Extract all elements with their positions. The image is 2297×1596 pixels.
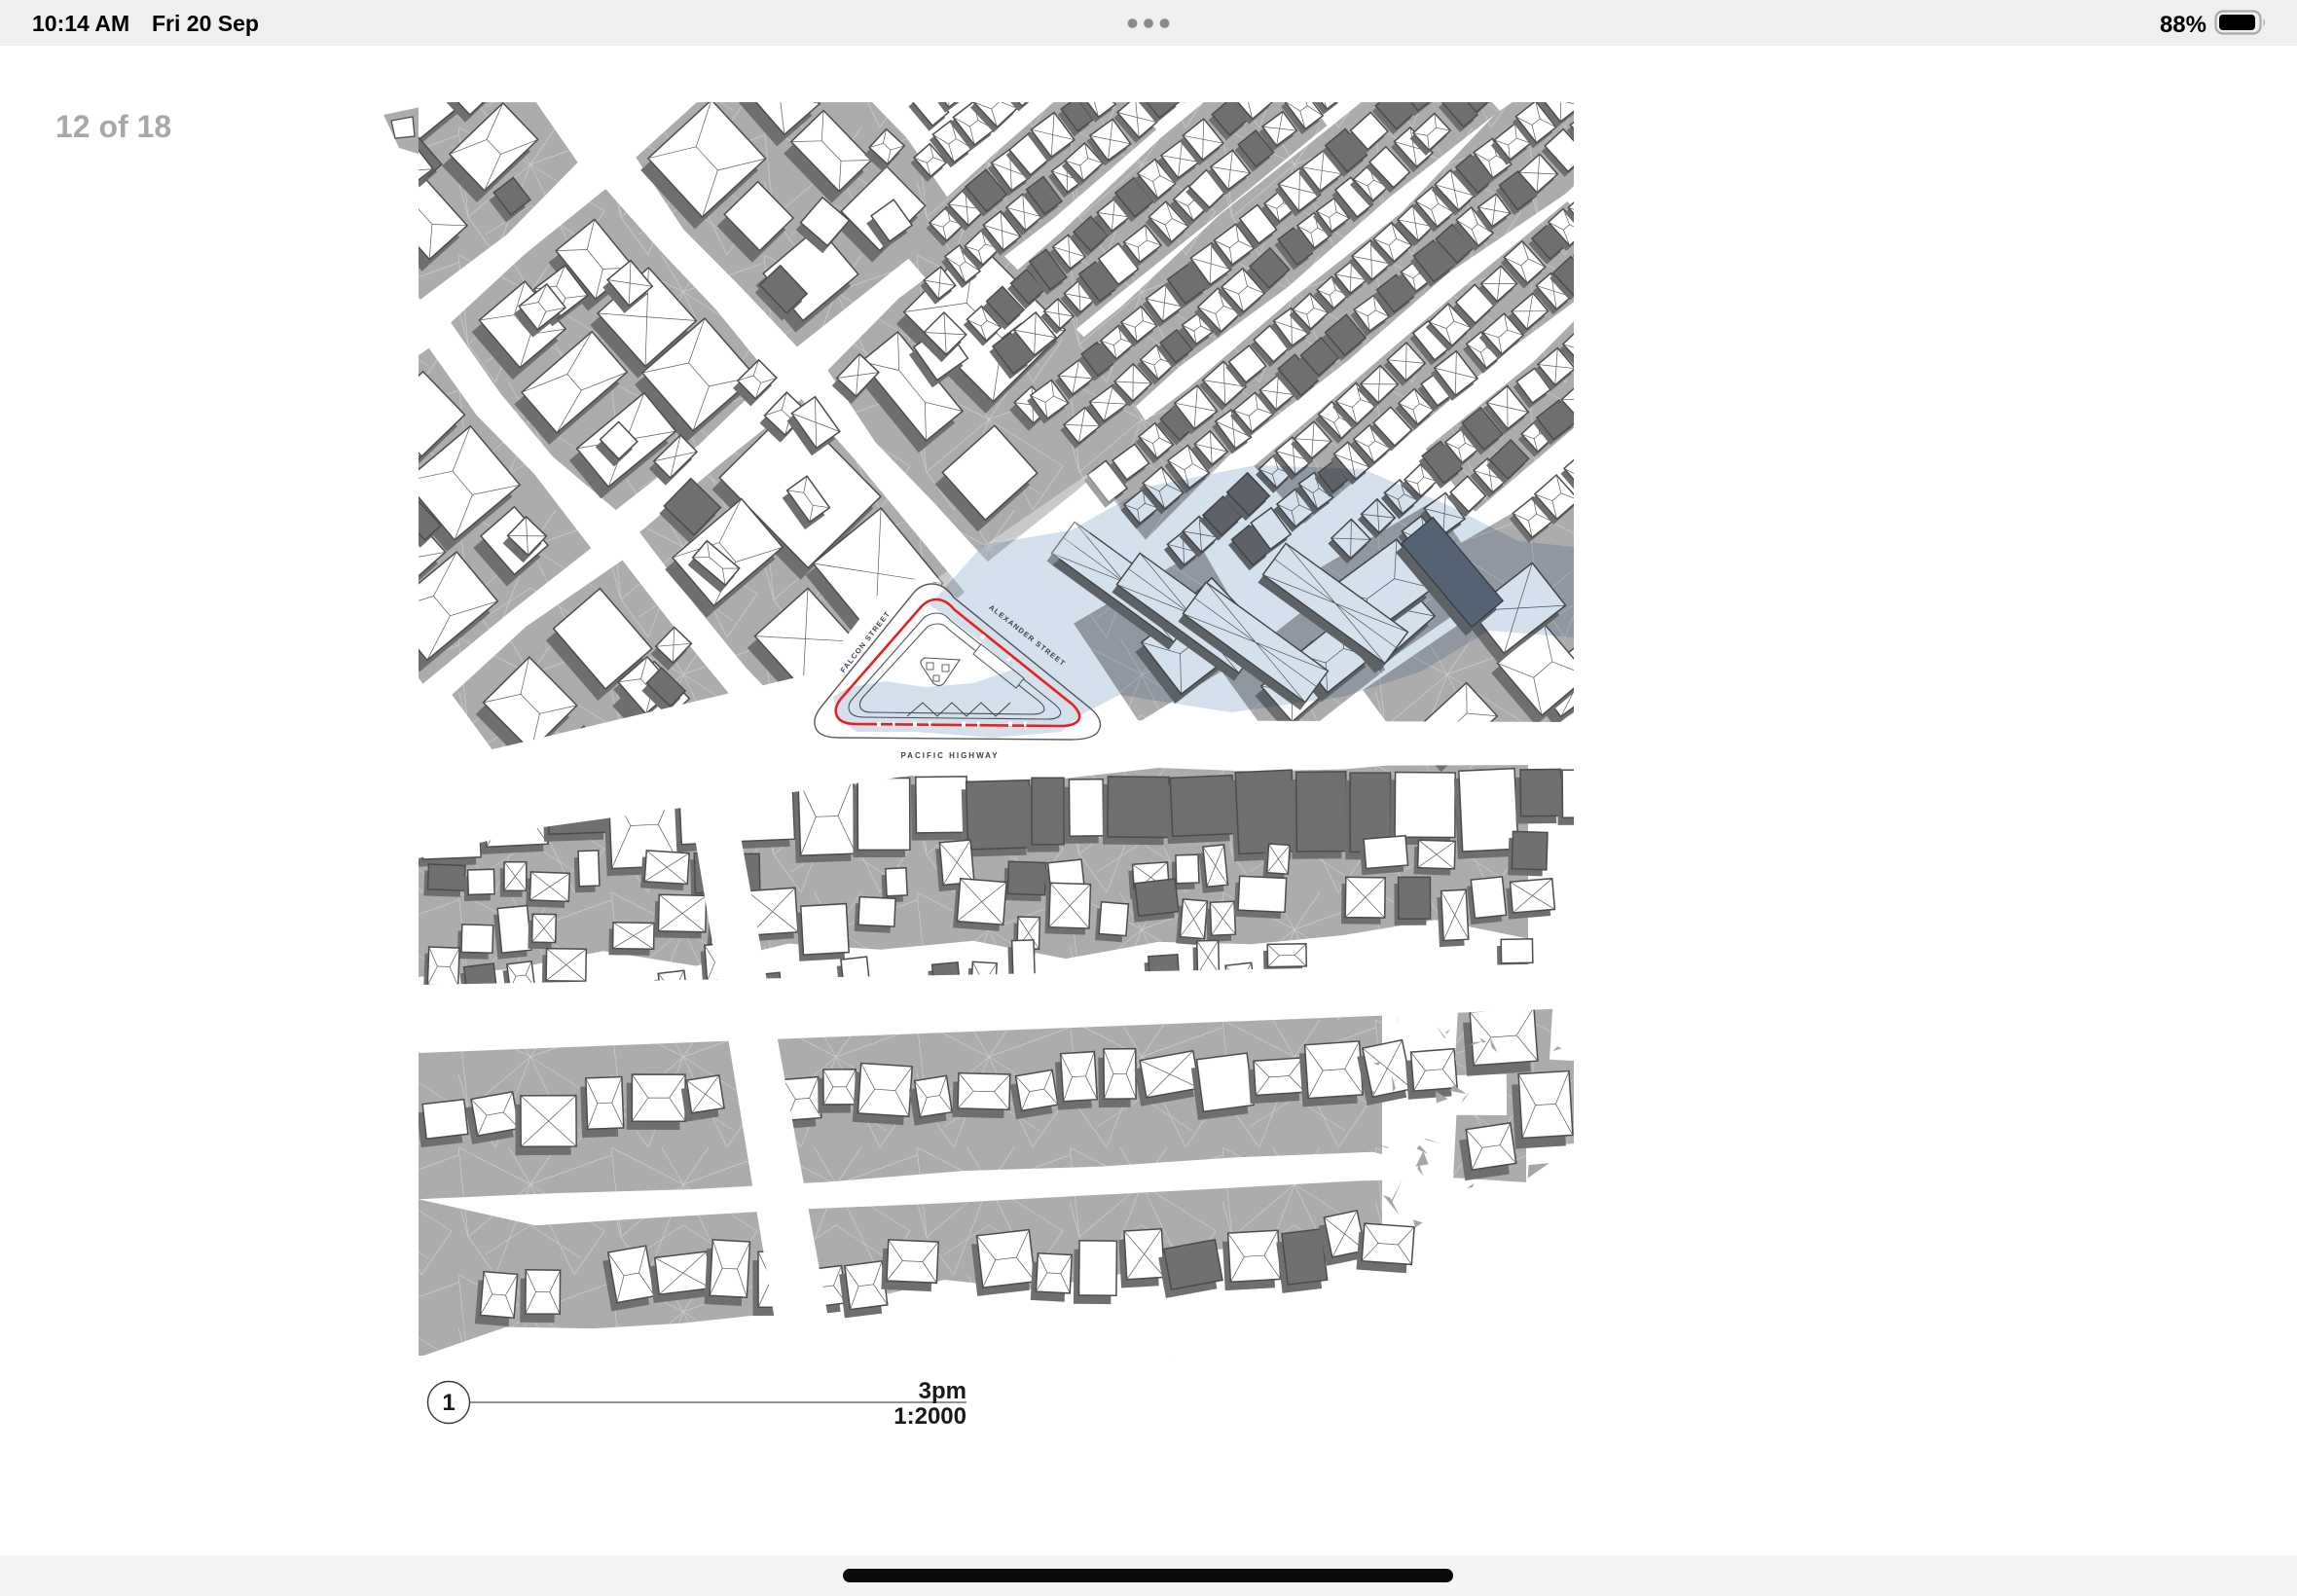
svg-text:1:2000: 1:2000 [893, 1403, 966, 1430]
svg-text:3pm: 3pm [919, 1378, 966, 1404]
svg-text:1: 1 [442, 1390, 455, 1416]
svg-text:PACIFIC HIGHWAY: PACIFIC HIGHWAY [900, 751, 999, 760]
